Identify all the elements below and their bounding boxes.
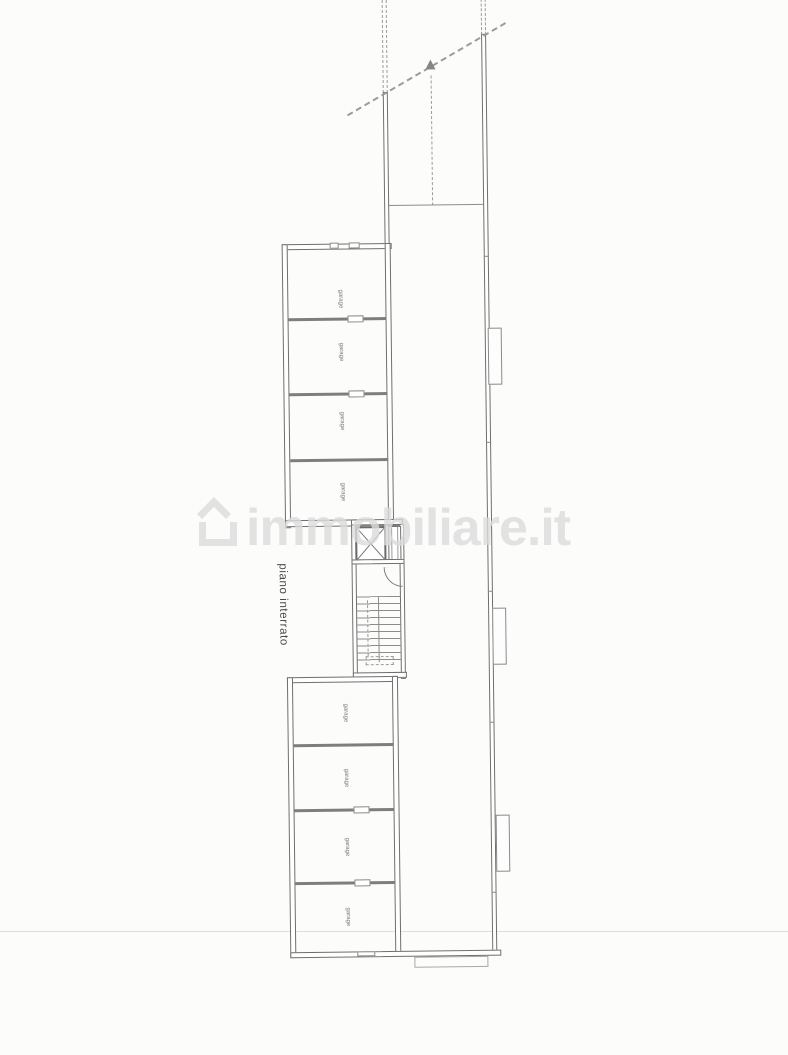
ramp-centerline bbox=[431, 75, 434, 205]
elevator-door-gap bbox=[360, 560, 372, 563]
room-divider-wall bbox=[294, 743, 394, 747]
wall-vent bbox=[353, 806, 369, 813]
room-label: garage bbox=[336, 409, 345, 433]
watermark-text: immobiliare.it bbox=[246, 502, 570, 554]
door-opening-mark bbox=[349, 242, 360, 248]
landing-wall bbox=[351, 559, 404, 565]
lower-block-left-wall bbox=[287, 677, 296, 958]
stair-landing-mark bbox=[366, 656, 394, 665]
wall-vent bbox=[348, 390, 364, 397]
room-divider-wall bbox=[289, 392, 387, 396]
room-label: garage bbox=[339, 701, 348, 725]
exterior-step bbox=[414, 956, 488, 968]
wall-joint-tick bbox=[484, 256, 489, 257]
upper-block-left-wall bbox=[282, 244, 291, 528]
room-divider-wall bbox=[290, 458, 388, 462]
wall-vent bbox=[347, 315, 363, 322]
lower-rooms-right-wall bbox=[392, 676, 401, 957]
room-label: garage bbox=[334, 287, 343, 311]
room-label: garage bbox=[342, 905, 351, 929]
watermark: immobiliare.it bbox=[194, 498, 570, 554]
room-divider-wall bbox=[289, 317, 387, 321]
door-swing-arc bbox=[384, 567, 403, 587]
up-arrow-icon bbox=[425, 59, 435, 69]
wall-joint-tick bbox=[489, 722, 494, 723]
door-opening-mark bbox=[330, 243, 339, 249]
room-divider-wall bbox=[295, 881, 395, 885]
window-recess bbox=[488, 328, 503, 385]
wall-joint-tick bbox=[492, 892, 497, 893]
ramp-end-line bbox=[388, 204, 483, 206]
upper-rooms-right-wall bbox=[385, 243, 394, 525]
house-body-shape bbox=[199, 522, 237, 546]
floor-label: piano interrato bbox=[277, 563, 290, 646]
room-label: garage bbox=[340, 766, 349, 790]
wall-joint-tick bbox=[488, 591, 493, 592]
ramp-right-wall-dashed bbox=[481, 0, 486, 35]
window-recess bbox=[492, 608, 507, 665]
window-recess bbox=[496, 815, 511, 872]
ramp-left-wall-dashed bbox=[382, 0, 388, 93]
wall-joint-tick bbox=[486, 442, 491, 443]
room-label: garage bbox=[341, 835, 350, 859]
wall-vent bbox=[354, 879, 370, 886]
sheet: garage garage garage garage bbox=[0, 0, 788, 1050]
lower-block-top-wall bbox=[287, 676, 398, 683]
door-opening-mark bbox=[357, 951, 375, 956]
room-divider-wall bbox=[295, 808, 395, 812]
room-label: garage bbox=[335, 340, 344, 364]
ramp-left-wall bbox=[383, 92, 390, 244]
house-icon bbox=[194, 498, 242, 550]
